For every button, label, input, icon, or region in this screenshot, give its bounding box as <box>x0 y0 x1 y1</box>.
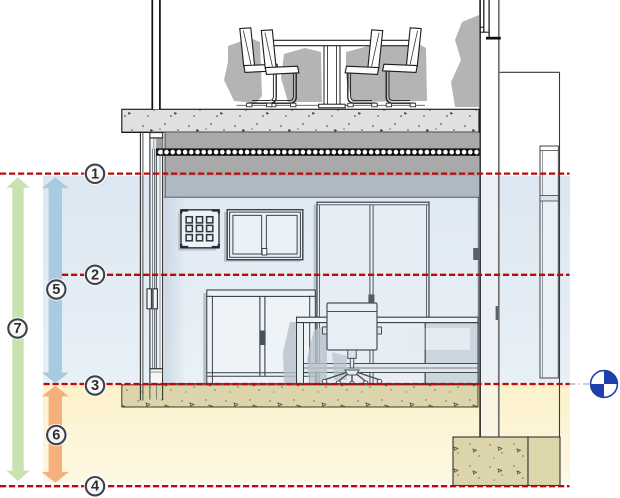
svg-text:2: 2 <box>91 267 99 283</box>
svg-text:4: 4 <box>91 479 100 495</box>
svg-text:6: 6 <box>52 428 60 444</box>
svg-text:5: 5 <box>52 282 60 298</box>
svg-text:1: 1 <box>91 166 99 182</box>
svg-text:3: 3 <box>91 378 99 394</box>
svg-text:7: 7 <box>13 321 21 337</box>
